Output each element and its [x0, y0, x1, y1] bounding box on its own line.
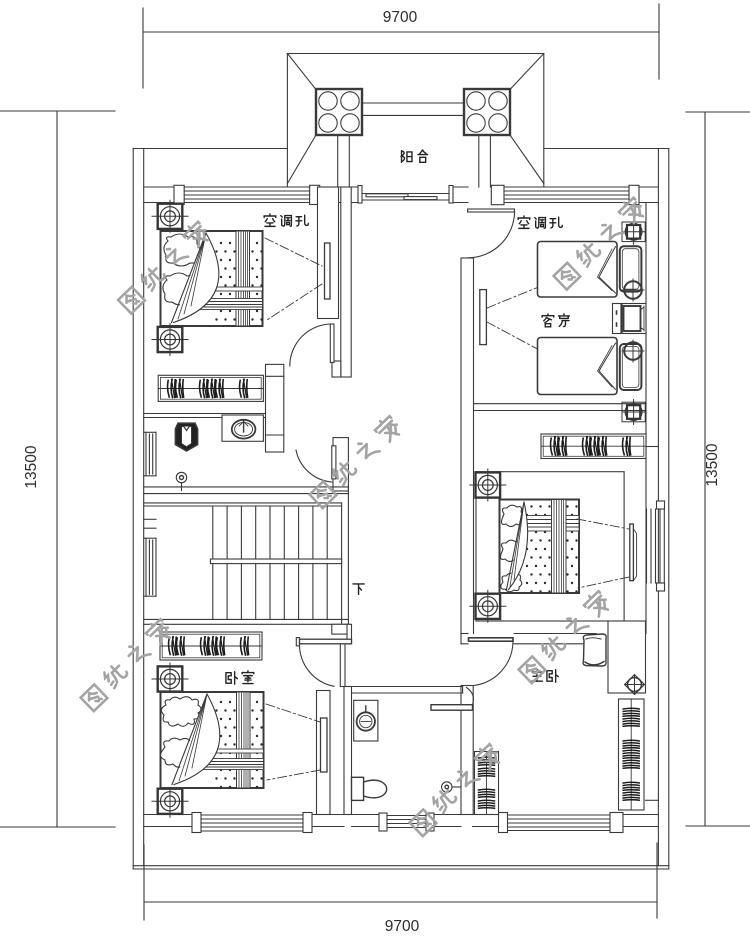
svg-text:9700: 9700	[385, 918, 420, 935]
svg-text:13500: 13500	[23, 445, 40, 488]
svg-text:9700: 9700	[383, 9, 418, 26]
svg-text:13500: 13500	[704, 443, 721, 486]
